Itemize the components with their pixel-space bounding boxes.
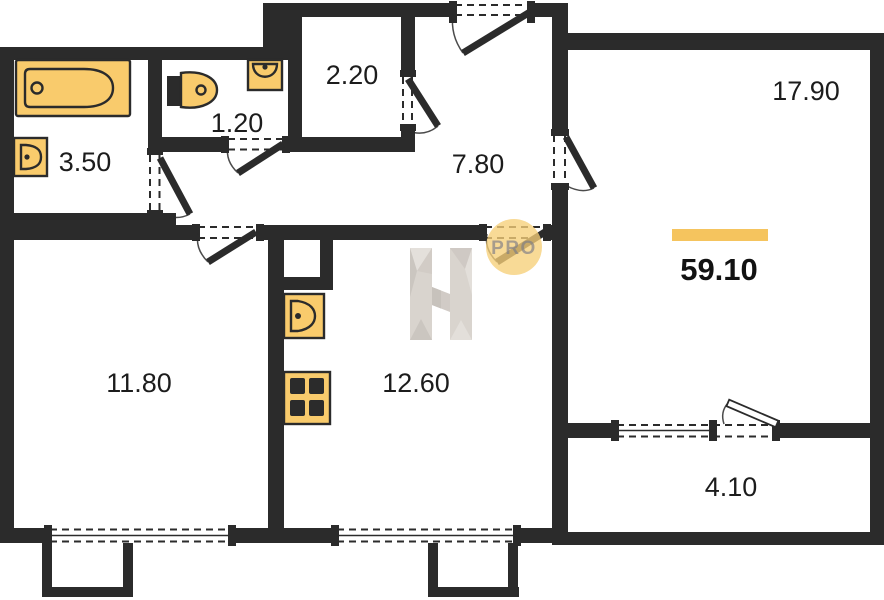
room-area-label-wc: 1.20 [211, 108, 264, 138]
washbasin-icon [14, 138, 47, 176]
room-area-label-closet: 2.20 [326, 60, 379, 90]
toilet-icon [167, 72, 217, 107]
kitchen-window [337, 530, 517, 542]
floor-plan: PRO 3.50 1.20 2.20 7.80 17.90 11.80 12.6… [0, 0, 884, 600]
windows [50, 425, 778, 542]
total-area-value: 59.10 [680, 252, 758, 287]
corner-sink-icon [248, 60, 282, 90]
total-area: 59.10 [672, 229, 768, 287]
room-area-label-bathroom: 3.50 [59, 147, 112, 177]
pro-badge-label: PRO [491, 238, 537, 259]
kitchen-sink-icon [284, 294, 324, 338]
wc-door [227, 144, 283, 173]
bedroom-window [50, 530, 230, 542]
window-ledges [42, 543, 519, 597]
balcony-door [723, 400, 779, 428]
bathroom-door [160, 158, 190, 218]
floor-plan-page: PRO 3.50 1.20 2.20 7.80 17.90 11.80 12.6… [0, 0, 884, 600]
room-area-label-hallway: 7.80 [452, 149, 505, 179]
stove-icon [284, 372, 330, 424]
pro-badge: PRO [486, 219, 542, 275]
bedroom-door [197, 232, 256, 262]
total-area-accent-bar [672, 229, 768, 241]
room-area-label-bedroom: 11.80 [106, 368, 172, 398]
room-area-label-balcony: 4.10 [705, 472, 758, 502]
room-area-label-kitchen: 12.60 [382, 368, 450, 398]
entrance-door [452, 12, 530, 53]
h-logo-icon [410, 248, 472, 340]
living-room-door [566, 137, 594, 191]
balcony-window [617, 425, 778, 437]
room-area-label-living-room: 17.90 [772, 76, 840, 106]
bathtub-icon [16, 60, 130, 116]
